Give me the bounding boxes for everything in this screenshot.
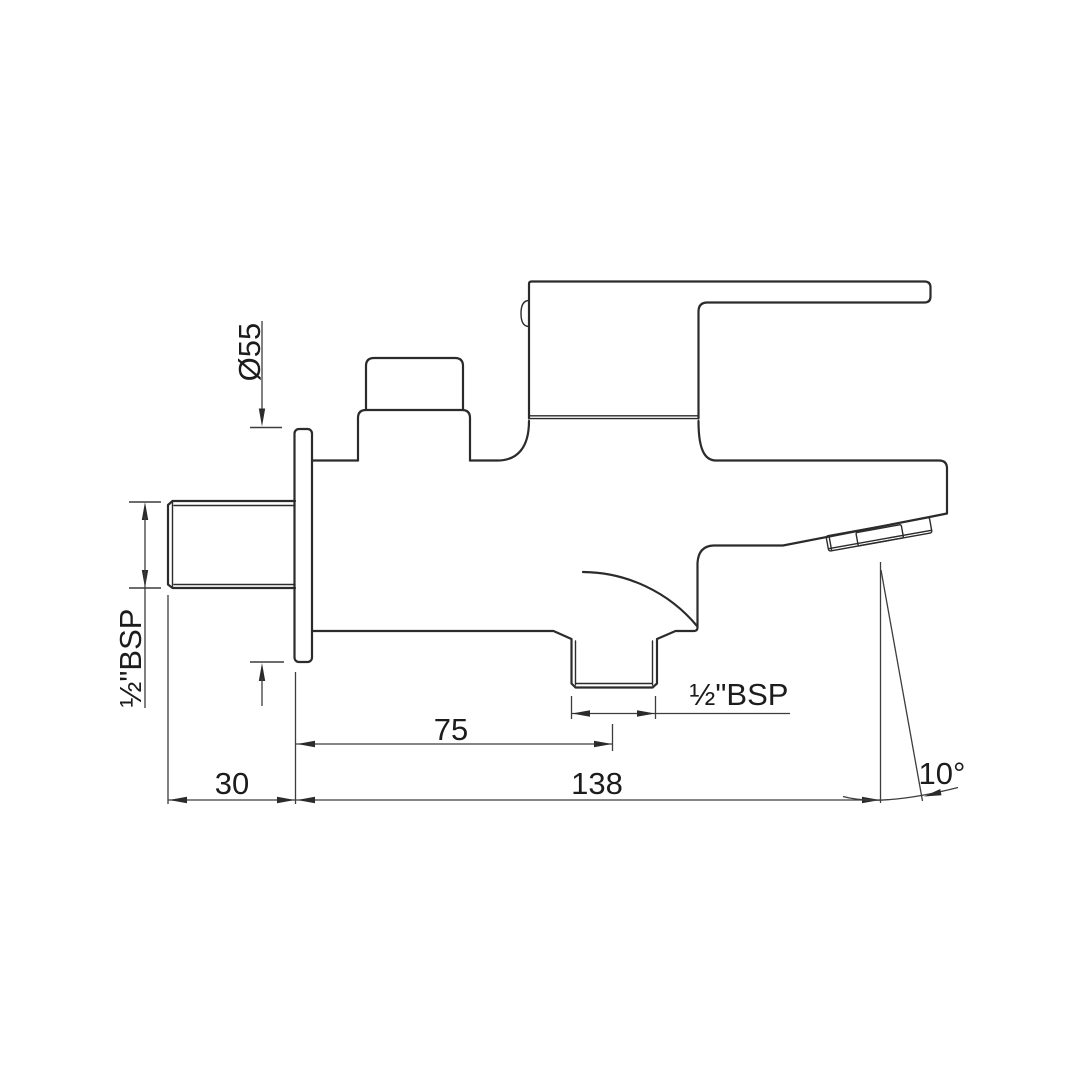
dimension-annotations: Ø55 ½"BSP 30 138 [113,321,965,804]
top-outlet-base [358,410,470,461]
cartridge-block-and-handle [529,282,931,419]
index-button [521,301,529,327]
dim-spout-angle: 10° [843,562,965,803]
bath-spout-dimension-drawing: Ø55 ½"BSP 30 138 [0,0,1080,1080]
arrow-right-icon [277,797,295,803]
body-and-spout-outline [312,461,947,688]
handle-parting-line [529,416,699,419]
dim-label-spout-angle: 10° [919,756,966,791]
inlet-pipe [168,501,295,588]
dim-label-outlet-offset: 75 [434,712,468,747]
drawing-page: Ø55 ½"BSP 30 138 [0,0,1080,1080]
arrow-left-icon [169,797,187,803]
spout-curve [583,572,697,626]
dim-label-spout-reach: 138 [571,766,623,801]
dim-label-flange-diameter: Ø55 [232,323,267,382]
body-top-edge [312,421,529,461]
inlet-pipe-thread-lines [173,502,296,588]
wall-flange [295,429,313,662]
dim-inlet-thread: ½"BSP [113,502,161,708]
outlet-thread-lines [576,641,653,685]
arrow-left-icon [297,797,315,803]
arrow-left-icon [572,710,590,716]
dim-outlet-offset: 75 [296,712,613,751]
arrow-left-icon [297,741,315,747]
block-right-fillet [699,421,717,461]
arrow-right-icon [594,741,612,747]
arrow-down-icon [259,409,265,427]
dim-wall-projection: 30 [168,595,296,804]
faucet-outline [168,282,947,688]
arrow-right-icon [637,710,655,716]
dim-flange-diameter: Ø55 [232,321,284,706]
dim-label-outlet-thread: ½"BSP [690,677,789,712]
top-outlet-port [366,358,463,410]
dim-spout-reach: 138 [296,766,881,803]
dim-label-wall-projection: 30 [215,766,249,801]
dim-label-inlet-thread: ½"BSP [113,609,148,708]
